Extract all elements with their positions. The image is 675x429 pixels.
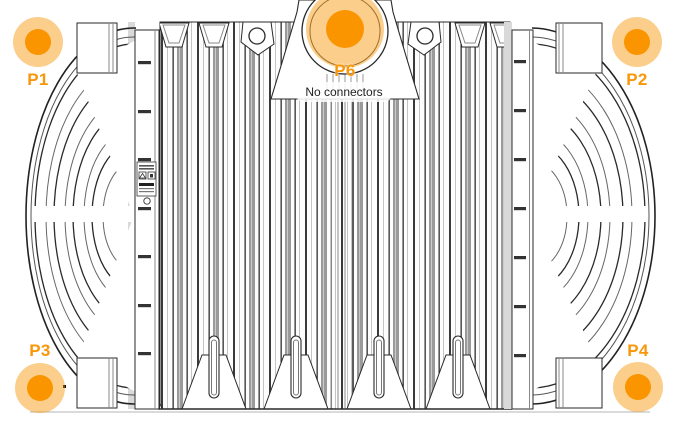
- level-scale-right: [512, 30, 533, 409]
- tank-connector-configurator: P1 P2 P3 P4 P6 No connectors: [0, 0, 675, 429]
- marker-dot: [624, 29, 650, 55]
- marker-dot: [25, 29, 51, 55]
- connector-label-p3: P3: [29, 341, 50, 361]
- connector-label-p1: P1: [27, 70, 48, 90]
- level-scale-left: [135, 30, 159, 409]
- figure-icon: [150, 174, 153, 178]
- marker-dot: [625, 374, 651, 400]
- connector-label-p4: P4: [627, 341, 648, 361]
- marker-dot: [326, 10, 364, 48]
- connector-label-p2: P2: [626, 70, 647, 90]
- connector-label-p6: P6: [334, 61, 355, 81]
- p6-note: No connectors: [296, 82, 391, 102]
- marker-dot: [27, 375, 53, 401]
